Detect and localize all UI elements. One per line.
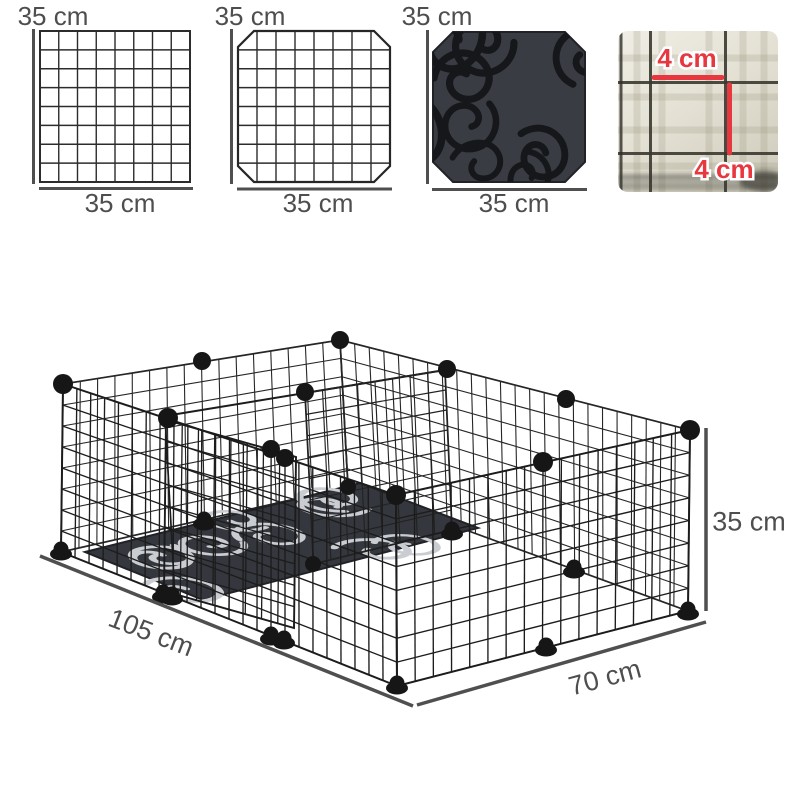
door-panel-figure (238, 31, 390, 182)
fig3-top-dim-label: 35 cm (402, 3, 473, 29)
playpen-width-dim-line (417, 622, 706, 705)
wire-panel-figure (40, 31, 190, 182)
fig2-bottom-dim-label: 35 cm (283, 190, 354, 216)
mesh-vertical-dim-label: 4 cm (694, 154, 753, 184)
fig1-bottom-dim-label: 35 cm (85, 190, 156, 216)
product-dimension-diagram: 4 cm 4 cm 35 cm 35 cm 35 cm 35 cm 35 cm … (0, 0, 800, 800)
fig3-bottom-dim-label: 35 cm (479, 190, 550, 216)
mesh-horizontal-dim-label: 4 cm (657, 43, 716, 73)
fig2-top-dim-label: 35 cm (215, 3, 286, 29)
mesh-closeup-figure: 4 cm 4 cm (618, 31, 788, 192)
fig1-top-dim-label: 35 cm (18, 3, 89, 29)
diagram-canvas: 4 cm 4 cm (0, 0, 800, 800)
playpen-height-label: 35 cm (712, 509, 786, 536)
